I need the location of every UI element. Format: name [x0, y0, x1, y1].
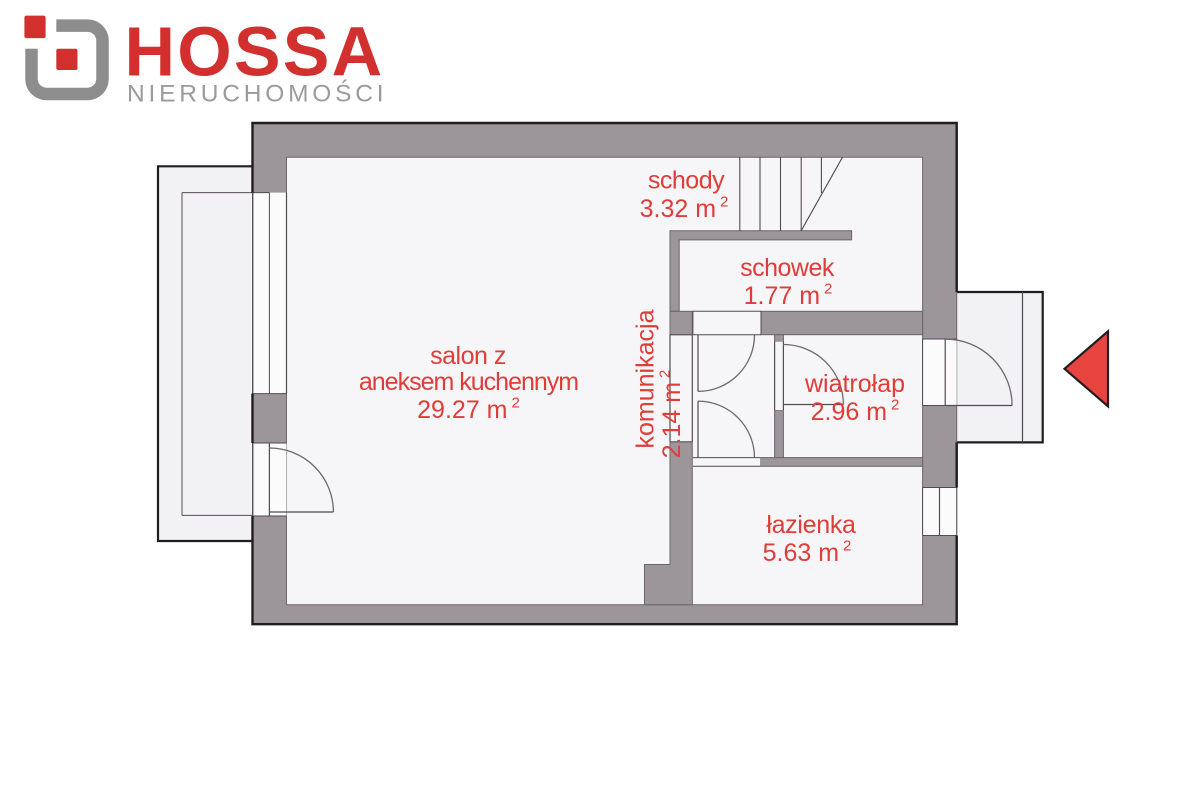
svg-text:2.96 m2: 2.96 m2: [811, 397, 900, 427]
svg-text:salon z: salon z: [430, 342, 506, 370]
svg-text:3.32 m2: 3.32 m2: [640, 194, 729, 224]
svg-text:schody: schody: [648, 167, 725, 195]
svg-text:2.14 m2: 2.14 m2: [657, 370, 687, 459]
svg-text:wiatrołap: wiatrołap: [804, 370, 905, 398]
svg-text:komunikacja: komunikacja: [632, 309, 660, 448]
svg-text:1.77 m2: 1.77 m2: [744, 281, 833, 311]
svg-text:schowek: schowek: [740, 254, 835, 282]
svg-text:5.63 m2: 5.63 m2: [763, 538, 852, 568]
svg-text:HOSSA: HOSSA: [125, 12, 385, 90]
svg-text:29.27 m2: 29.27 m2: [417, 395, 520, 425]
svg-text:NIERUCHOMOŚCI: NIERUCHOMOŚCI: [127, 80, 387, 108]
svg-text:łazienka: łazienka: [766, 511, 856, 539]
svg-text:aneksem kuchennym: aneksem kuchennym: [359, 368, 578, 396]
